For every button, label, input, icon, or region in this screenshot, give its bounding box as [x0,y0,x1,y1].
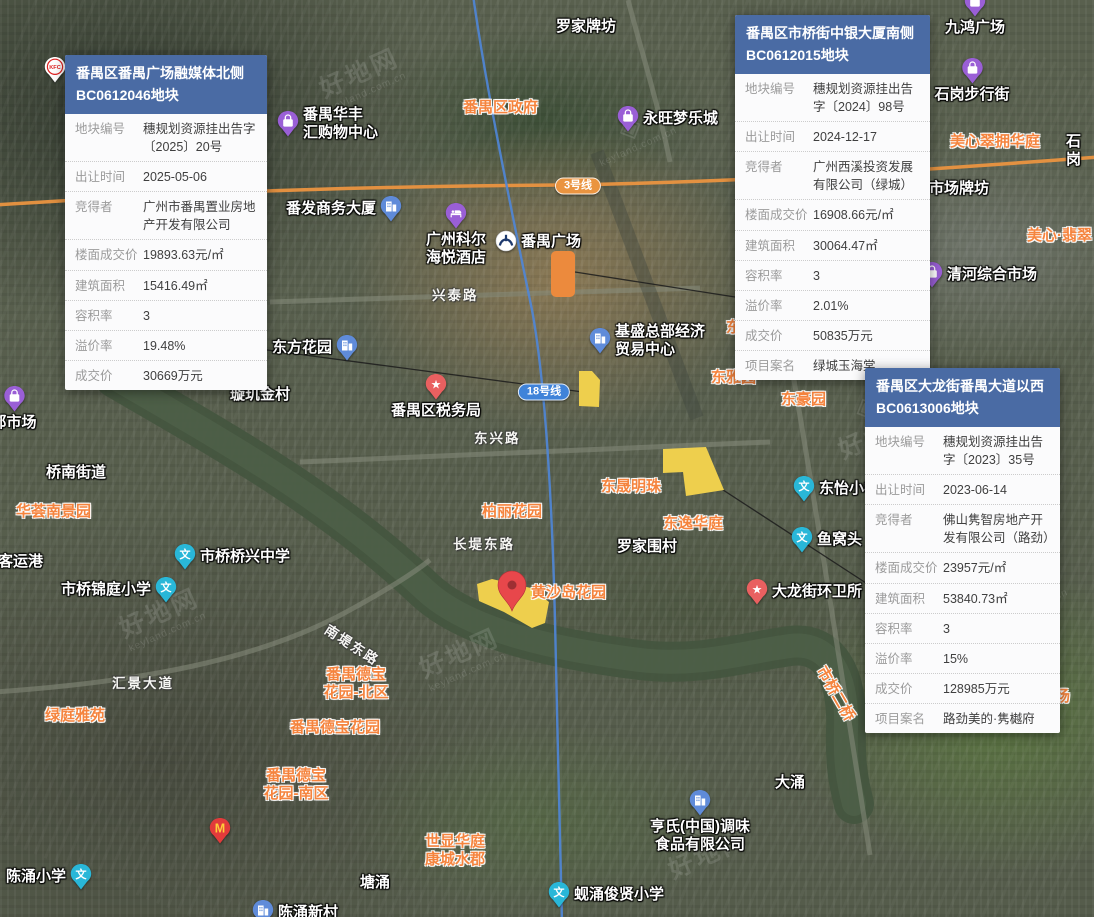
label-huangsha-island-garden: 黄沙岛花园 [531,584,606,602]
card-title: 番禺区番禺广场融媒体北侧 [76,62,256,84]
card-row: 成交价128985万元 [865,674,1060,704]
label-baili-garden: 柏丽花园 [482,503,542,521]
poi-label: 陈涌小学 [6,868,66,886]
card-row: 出让时间2025-05-06 [65,162,267,192]
poi-label: 广州科尔 海悦酒店 [426,231,486,267]
card-row: 溢价率19.48% [65,331,267,361]
card-header: 番禺区市桥街中银大厦南侧 BC0612015地块 [735,15,930,74]
card-row: 地块编号穗规划资源挂出告字〔2023〕35号 [865,427,1060,475]
label-tangchong: 塘涌 [360,874,390,892]
school-icon[interactable] [174,543,196,571]
school-icon[interactable] [70,863,92,891]
label-shichang-paifang: 市场牌坊 [929,180,989,198]
bank-building-icon[interactable] [336,334,358,362]
label-shigang: 石岗 [1066,133,1094,169]
star-pin-icon[interactable] [425,373,447,401]
poi-qiaoxing-school[interactable]: 市桥桥兴中学 [174,543,290,571]
label-debao-south: 番禺德宝 花园-南区 [264,767,329,803]
poi-label: 市桥锦庭小学 [61,581,151,599]
poi-fanfa-tower[interactable]: 番发商务大厦 [286,195,402,223]
label-luojia-weicun: 罗家围村 [617,538,677,556]
kfc-icon[interactable] [44,56,66,84]
poi-dongfang-garden[interactable]: 东方花园 [272,334,358,362]
office-building-icon[interactable] [589,327,611,355]
label-dongsheng-mingzhu: 东晟明珠 [601,478,661,496]
card-row: 出让时间2023-06-14 [865,475,1060,505]
poi-label: 蚬涌俊贤小学 [574,886,664,904]
poi-label: 郊市场 [0,414,37,432]
poi-label: 陈涌新村 [278,904,338,917]
school-icon[interactable] [791,526,813,554]
parcel-BC0613006[interactable] [663,447,724,496]
label-dachong: 大涌 [775,774,805,792]
school-icon[interactable] [793,475,815,503]
watermark: 好地网 keyland.com.cn [416,625,508,694]
poi-label: 番禺区税务局 [391,402,481,420]
card-row: 容积率3 [865,614,1060,644]
label-changdi-east-road: 长堤东路 [453,537,515,553]
card-row: 成交价30669万元 [65,361,267,390]
label-lvting-yayuan: 绿庭雅苑 [45,707,105,725]
poi-shigang-street[interactable]: 石岗步行街 [934,57,1009,104]
poi-mcdonalds[interactable] [209,817,231,845]
card-row: 地块编号穗规划资源挂出告字〔2025〕20号 [65,114,267,162]
poi-chenchong-xincun[interactable]: 陈涌新村 [252,899,338,917]
label-meixin-feicui: 美心·翡翠 [1027,227,1092,245]
poi-kfc[interactable] [44,56,66,84]
poi-label: 永旺梦乐城 [643,110,718,128]
label-huahui-nanjingyuan: 华荟南景园 [16,503,91,521]
card-header: 番禺区大龙街番禺大道以西 BC0613006地块 [865,368,1060,427]
poi-jiuhong-plaza[interactable]: 九鸿广场 [945,0,1005,37]
card-row: 竞得者广州西溪投资发展有限公司（绿城） [735,152,930,200]
label-qiaonan-jiedao: 桥南街道 [46,464,106,482]
parcel-card-BC0613006: 番禺区大龙街番禺大道以西 BC0613006地块 地块编号穗规划资源挂出告字〔2… [865,368,1060,733]
poi-label: 番禺华丰 汇购物中心 [303,106,378,142]
office-building-icon[interactable] [689,789,711,817]
label-debao-north: 番禺德宝 花园-北区 [324,666,389,702]
card-row: 竞得者佛山隽智房地产开发有限公司（路劲） [865,505,1060,553]
poi-label: 石岗步行街 [934,86,1009,104]
card-row: 溢价率2.01% [735,291,930,321]
shopping-bag-icon[interactable] [617,105,639,133]
label-luojia-paifang: 罗家牌坊 [556,18,616,36]
poi-label: 大龙街环卫所 [772,583,862,601]
label-keyungang: 客运港 [0,553,43,571]
card-row: 楼面成交价23957元/㎡ [865,553,1060,583]
metro-line-18-badge: 18号线 [518,384,570,401]
poi-huafeng-mall[interactable]: 番禺华丰 汇购物中心 [277,106,378,142]
poi-label: 番发商务大厦 [286,200,376,218]
label-debao-garden: 番禺德宝花园 [290,719,380,737]
label-nandi-east-road: 南堤东路 [330,622,392,638]
hotel-bed-icon[interactable] [445,202,467,230]
poi-label: 东方花园 [272,339,332,357]
card-row: 容积率3 [65,301,267,331]
parcel-card-BC0612046: 番禺区番禺广场融媒体北侧 BC0612046地块 地块编号穗规划资源挂出告字〔2… [65,55,267,390]
shopping-bag-icon[interactable] [964,0,986,18]
school-icon[interactable] [155,576,177,604]
poi-label: 亨氏(中国)调味 食品有限公司 [650,818,750,854]
card-row: 建筑面积30064.47㎡ [735,231,930,261]
metro-station-icon[interactable] [495,228,517,256]
label-shiqiao-bridge: 市桥二桥 [805,685,865,703]
shopping-bag-icon[interactable] [961,57,983,85]
metro-line-3-badge: 3号线 [555,178,601,195]
card-row: 溢价率15% [865,644,1060,674]
label-dongyi-huating: 东逸华庭 [663,515,723,533]
label-shixian-huating: 世显华庭 康城水郡 [425,833,485,869]
office-building-icon[interactable] [252,899,274,917]
card-title: 番禺区市桥街中银大厦南侧 [746,22,919,44]
poi-label: 市桥桥兴中学 [200,548,290,566]
poi-label: 清河综合市场 [947,266,1037,284]
card-row: 项目案名路劲美的·隽樾府 [865,704,1060,733]
label-xingtai-road: 兴泰路 [432,288,479,304]
shopping-bag-icon[interactable] [3,385,25,413]
poi-label: 鱼窝头 [817,531,862,549]
poi-hengshi-foods[interactable]: 亨氏(中国)调味 食品有限公司 [650,789,750,854]
metro-line-18 [473,0,562,917]
star-pin-icon[interactable] [746,578,768,606]
poi-yongwang-mall[interactable]: 永旺梦乐城 [617,105,718,133]
railway-band [597,152,697,418]
poi-label: 基盛总部经济 贸易中心 [615,323,705,359]
mcdonalds-icon[interactable] [209,817,231,845]
poi-jiao-market[interactable]: 郊市场 [0,385,37,432]
card-row: 容积率3 [735,261,930,291]
card-row: 竞得者广州市番禺置业房地产开发有限公司 [65,192,267,240]
card-row: 出让时间2024-12-17 [735,122,930,152]
poi-qinghe-market[interactable]: 清河综合市场 [921,261,1037,289]
poi-keer-hotel[interactable]: 广州科尔 海悦酒店 [426,202,486,267]
card-header: 番禺区番禺广场融媒体北侧 BC0612046地块 [65,55,267,114]
poi-label: 九鸿广场 [945,19,1005,37]
card-code: BC0612046地块 [76,84,256,106]
parcel-BC0612046[interactable] [579,371,600,407]
card-row: 楼面成交价19893.63元/㎡ [65,240,267,270]
label-meixin-cuiyong: 美心翠拥华庭 [950,133,1040,151]
label-dongxing-road: 东兴路 [474,431,521,447]
card-row: 楼面成交价16908.66元/㎡ [735,200,930,230]
poi-panyu-square-station[interactable]: 番禺广场 [495,228,581,256]
poi-jinting-school[interactable]: 市桥锦庭小学 [61,576,177,604]
office-building-icon[interactable] [380,195,402,223]
card-row: 建筑面积15416.49㎡ [65,271,267,301]
poi-jisheng-trade-center[interactable]: 基盛总部经济 贸易中心 [589,323,705,359]
parcel-card-BC0612015: 番禺区市桥街中银大厦南侧 BC0612015地块 地块编号穗规划资源挂出告字〔2… [735,15,930,380]
label-donghao-yuan: 东豪园 [781,391,826,409]
poi-dalong-sanitation[interactable]: 大龙街环卫所 [746,578,862,606]
map-viewport[interactable]: 文 ★ [0,0,1094,917]
card-row: 成交价50835万元 [735,321,930,351]
school-icon[interactable] [548,881,570,909]
watermark: 好地网 keyland.com.cn [316,45,408,114]
shopping-bag-icon[interactable] [277,110,299,138]
poi-yuwotou-school[interactable]: 鱼窝头 [791,526,862,554]
label-panyu-government: 番禺区政府 [463,99,538,117]
card-code: BC0612015地块 [746,44,919,66]
poi-chenchong-school[interactable]: 陈涌小学 [6,863,92,891]
card-code: BC0613006地块 [876,397,1049,419]
card-row: 建筑面积53840.73㎡ [865,584,1060,614]
poi-panyu-tax-bureau[interactable]: 番禺区税务局 [391,373,481,420]
parcel-BC0612015[interactable] [551,251,575,297]
poi-xianchong-school[interactable]: 蚬涌俊贤小学 [548,881,664,909]
poi-label: 番禺广场 [521,233,581,251]
card-row: 地块编号穗规划资源挂出告字〔2024〕98号 [735,74,930,122]
card-title: 番禺区大龙街番禺大道以西 [876,375,1049,397]
label-huijing-avenue: 汇景大道 [112,676,174,692]
